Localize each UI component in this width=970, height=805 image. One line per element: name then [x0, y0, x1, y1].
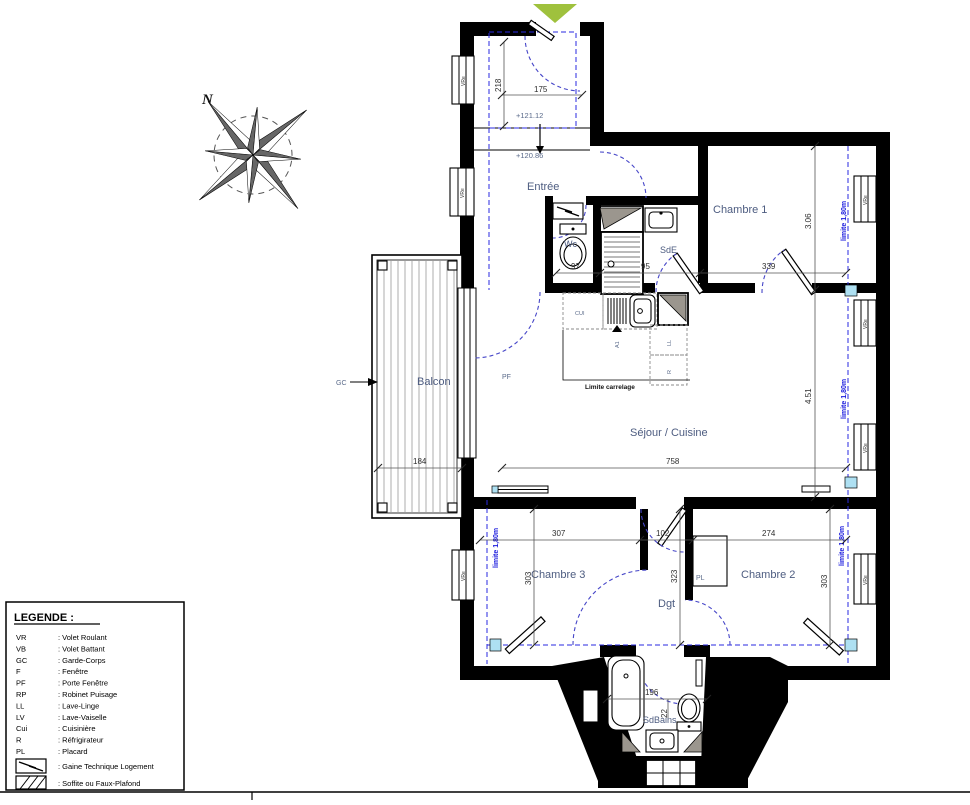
- room-label-balcon: Balcon: [417, 376, 451, 388]
- sink-icon: [646, 730, 678, 752]
- gc-label: GC: [336, 380, 347, 387]
- legend-abbr: RP: [16, 690, 26, 699]
- dishwasher-icon: [608, 298, 626, 324]
- north-label: N: [201, 92, 214, 108]
- legend-abbr: R: [16, 736, 22, 745]
- shower-icon: [601, 232, 643, 294]
- legend-abbr: Cui: [16, 724, 28, 733]
- dim-sdb-toilet-gap: 22: [660, 709, 669, 718]
- dim-ch2-depth: 303: [820, 574, 829, 588]
- ll-label: LL: [667, 340, 673, 346]
- floor-plan-drawing: N: [0, 0, 970, 800]
- sink-icon: [645, 208, 677, 232]
- svg-text:VRe: VRe: [863, 195, 869, 205]
- legend-label: : Placard: [58, 747, 88, 756]
- soffite-icon: [600, 208, 641, 229]
- room-label-wc: Wc: [564, 239, 577, 249]
- legend-abbr: VB: [16, 644, 26, 653]
- svg-text:VRe: VRe: [863, 319, 869, 329]
- wc-area: Wc: [553, 203, 586, 269]
- limite-180-label: limite 1,80m: [493, 528, 500, 568]
- kitchen-area: CUI LL R Limite carrelage A1: [563, 293, 690, 391]
- casement-window-leaf: [804, 618, 844, 655]
- window: VRe: [854, 176, 876, 222]
- svg-text:VRe: VRe: [863, 575, 869, 585]
- legend-abbr: PL: [16, 747, 25, 756]
- svg-text:VRe: VRe: [461, 76, 467, 86]
- balcony: Balcon: [372, 255, 462, 518]
- dim-ch3-width: 307: [552, 529, 566, 538]
- room-label-entree: Entrée: [527, 181, 559, 193]
- legend-label: : Soffite ou Faux-Plafond: [58, 779, 140, 788]
- svg-text:VRe: VRe: [460, 188, 466, 198]
- window: VRe: [854, 300, 876, 346]
- window: [583, 690, 598, 722]
- legend-abbr: F: [16, 667, 21, 676]
- dim-sejour-depth: 4.51: [804, 388, 813, 404]
- casement-window-leaf: [505, 617, 545, 654]
- legend-abbr: GC: [16, 656, 28, 665]
- legend-label: : Garde-Corps: [58, 656, 106, 665]
- dim-sdb-width: 196: [645, 688, 659, 697]
- legend-label: : Fenêtre: [58, 667, 88, 676]
- svg-text:VRe: VRe: [863, 443, 869, 453]
- placard: PL: [693, 536, 727, 586]
- soffite-icon: [684, 732, 702, 752]
- soffite-icon: [622, 732, 640, 752]
- dim-ch2-width: 274: [762, 529, 776, 538]
- sde-area: SdE: [598, 206, 677, 294]
- svg-text:VRe: VRe: [461, 571, 467, 581]
- limite-carrelage-label: Limite carrelage: [585, 384, 635, 391]
- level-upper-label: +121.12: [516, 111, 543, 120]
- dim-ch1-width: 339: [762, 262, 776, 271]
- room-label-sejour: Séjour / Cuisine: [630, 427, 708, 439]
- section-marker-label: A1: [615, 341, 621, 348]
- section-marker-icon: [612, 325, 622, 332]
- toilet-icon: [677, 694, 701, 731]
- dim-sejour-width: 758: [666, 457, 680, 466]
- legend-abbr: PF: [16, 679, 26, 688]
- legend-label: : Lave-Vaiselle: [58, 713, 107, 722]
- window: VRe: [450, 168, 474, 216]
- legend-label: : Volet Roulant: [58, 633, 108, 642]
- legend-label: : Porte Fenêtre: [58, 679, 108, 688]
- soffite-icon: [660, 295, 686, 321]
- legend-box: LEGENDE : VR : Volet Roulant VB : Volet …: [6, 602, 184, 790]
- towel-radiator-icon: [696, 660, 702, 686]
- dim-ch3-depth: 303: [524, 571, 533, 585]
- legend-label: : Cuisinière: [58, 724, 96, 733]
- sdbains-area: SdBains: [608, 656, 702, 752]
- room-label-sde: SdE: [660, 245, 677, 255]
- window: VRe: [452, 550, 474, 600]
- room-label-chambre1: Chambre 1: [713, 204, 767, 216]
- room-label-chambre3: Chambre 3: [531, 569, 585, 581]
- legend-soffite-symbol-icon: [16, 776, 46, 789]
- legend-title: LEGENDE :: [14, 612, 74, 624]
- dim-entry-width: 175: [534, 85, 548, 94]
- legend-abbr: VR: [16, 633, 27, 642]
- dim-ch1-depth: 3.06: [804, 213, 813, 229]
- dim-dgt-depth: 323: [670, 569, 679, 583]
- limite-180-label: limite 1,80m: [839, 526, 846, 566]
- r-label: R: [667, 370, 673, 374]
- dim-shower-width: 95: [641, 262, 650, 271]
- walls: [460, 22, 890, 788]
- legend-label: : Lave-Linge: [58, 701, 99, 710]
- room-label-chambre2: Chambre 2: [741, 569, 795, 581]
- radiators: [490, 285, 857, 686]
- window: VRe: [854, 424, 876, 470]
- legend-label: : Réfrigirateur: [58, 736, 104, 745]
- legend-label: : Volet Battant: [58, 644, 106, 653]
- legend-label: : Robinet Puisage: [58, 690, 117, 699]
- legend-abbr: LV: [16, 713, 25, 722]
- window: VRe: [854, 554, 876, 604]
- pl-label: PL: [696, 575, 705, 582]
- legend-label: : Gaine Technique Logement: [58, 762, 155, 771]
- porte-fenetre: PF: [458, 288, 511, 458]
- window: [646, 760, 696, 786]
- limite-180-label: limite 1,80m: [841, 379, 848, 419]
- limite-180-label: limite 1,80m: [841, 201, 848, 241]
- room-label-dgt: Dgt: [658, 598, 675, 610]
- pf-label: PF: [502, 374, 511, 381]
- legend-abbr: LL: [16, 701, 24, 710]
- dim-entry-depth: 218: [494, 78, 503, 92]
- bathtub-icon: [608, 656, 644, 730]
- entrance-direction-arrow-icon: [533, 4, 577, 23]
- kitchen-sink-icon: [630, 295, 655, 327]
- legend-gaine-symbol-icon: [16, 759, 46, 773]
- floor-plan-page: N: [0, 0, 970, 800]
- dim-dgt-width: 102: [656, 529, 670, 538]
- dim-wc-width: 97: [571, 262, 580, 271]
- compass-rose-icon: N: [154, 56, 351, 253]
- window: VRe: [452, 56, 474, 104]
- level-annotations: +121.12 +120.86: [516, 111, 544, 160]
- dim-balcon-width: 184: [413, 457, 427, 466]
- cui-label: CUI: [575, 311, 585, 317]
